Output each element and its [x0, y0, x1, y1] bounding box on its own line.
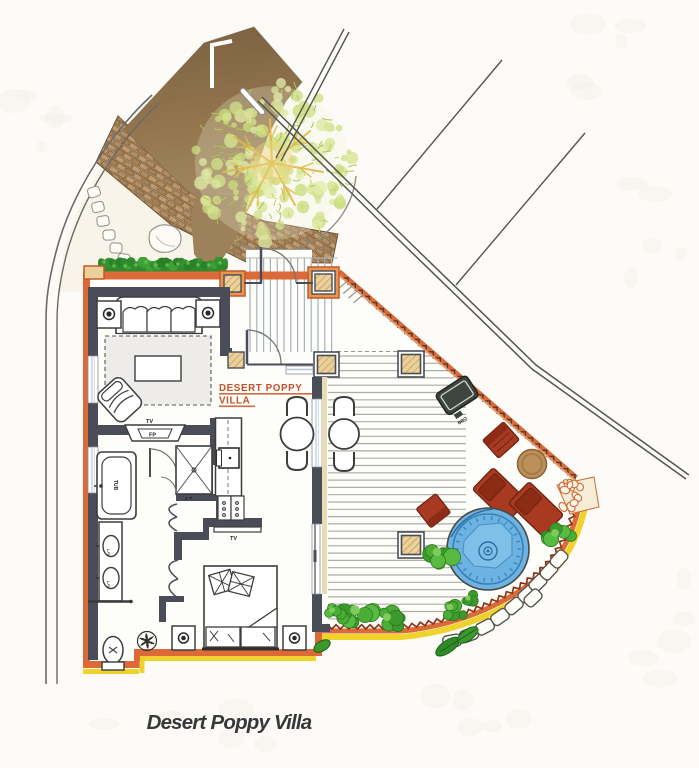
svg-text:TUB: TUB — [112, 480, 118, 491]
svg-text:FP: FP — [149, 433, 156, 439]
svg-text:TV: TV — [146, 419, 153, 425]
svg-text:TV: TV — [230, 536, 237, 542]
svg-text:▲▼: ▲▼ — [184, 496, 193, 501]
svg-text:Desert Poppy Villa: Desert Poppy Villa — [147, 711, 312, 734]
svg-text:VILLA: VILLA — [219, 396, 250, 407]
svg-text:DESERT POPPY: DESERT POPPY — [219, 383, 302, 394]
svg-text:LAV: LAV — [106, 581, 111, 589]
svg-text:LAV: LAV — [106, 549, 111, 557]
